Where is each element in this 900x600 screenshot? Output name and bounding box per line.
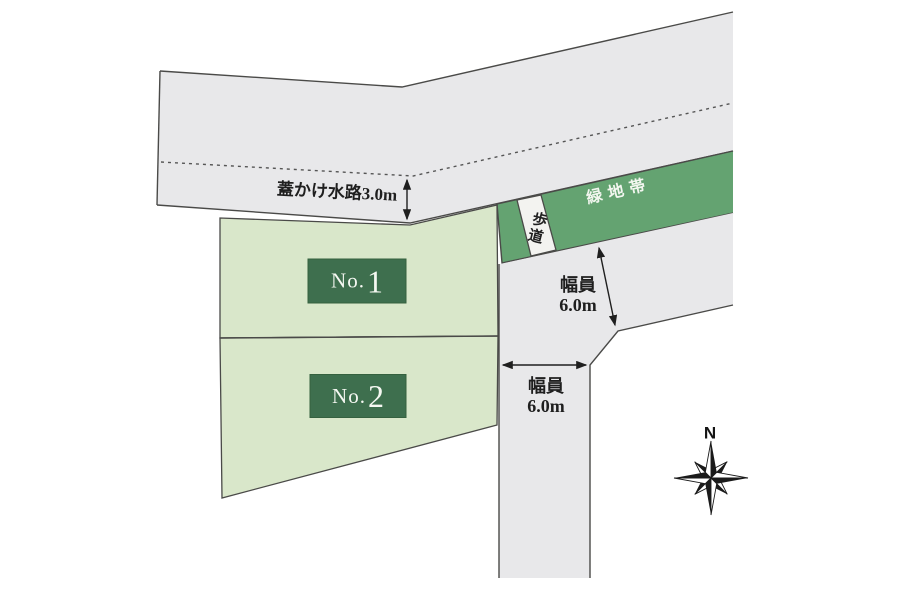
site-plan-drawing xyxy=(0,0,900,600)
lot-1-label-box: No. 1 xyxy=(308,259,407,304)
road-width-upper-line1: 幅員 xyxy=(559,276,597,296)
lot-1-prefix: No. xyxy=(331,269,365,294)
lot-2-prefix: No. xyxy=(332,384,366,409)
compass-north-label: N xyxy=(704,425,716,444)
road-width-label-upper: 幅員 6.0m xyxy=(559,276,597,316)
compass-rose-icon xyxy=(674,441,748,515)
lot-layout-diagram: 蓋かけ水路3.0m 緑地帯 歩道 幅員 6.0m 幅員 6.0m No. 1 N… xyxy=(0,0,900,600)
road-width-lower-line1: 幅員 xyxy=(527,377,565,397)
lot-2-label-box: No. 2 xyxy=(310,374,407,418)
road-width-label-lower: 幅員 6.0m xyxy=(527,377,565,417)
road-width-upper-line2: 6.0m xyxy=(559,296,597,316)
lot-1-number: 1 xyxy=(367,265,383,297)
road-width-lower-line2: 6.0m xyxy=(527,397,565,417)
lot-2-number: 2 xyxy=(368,380,384,412)
